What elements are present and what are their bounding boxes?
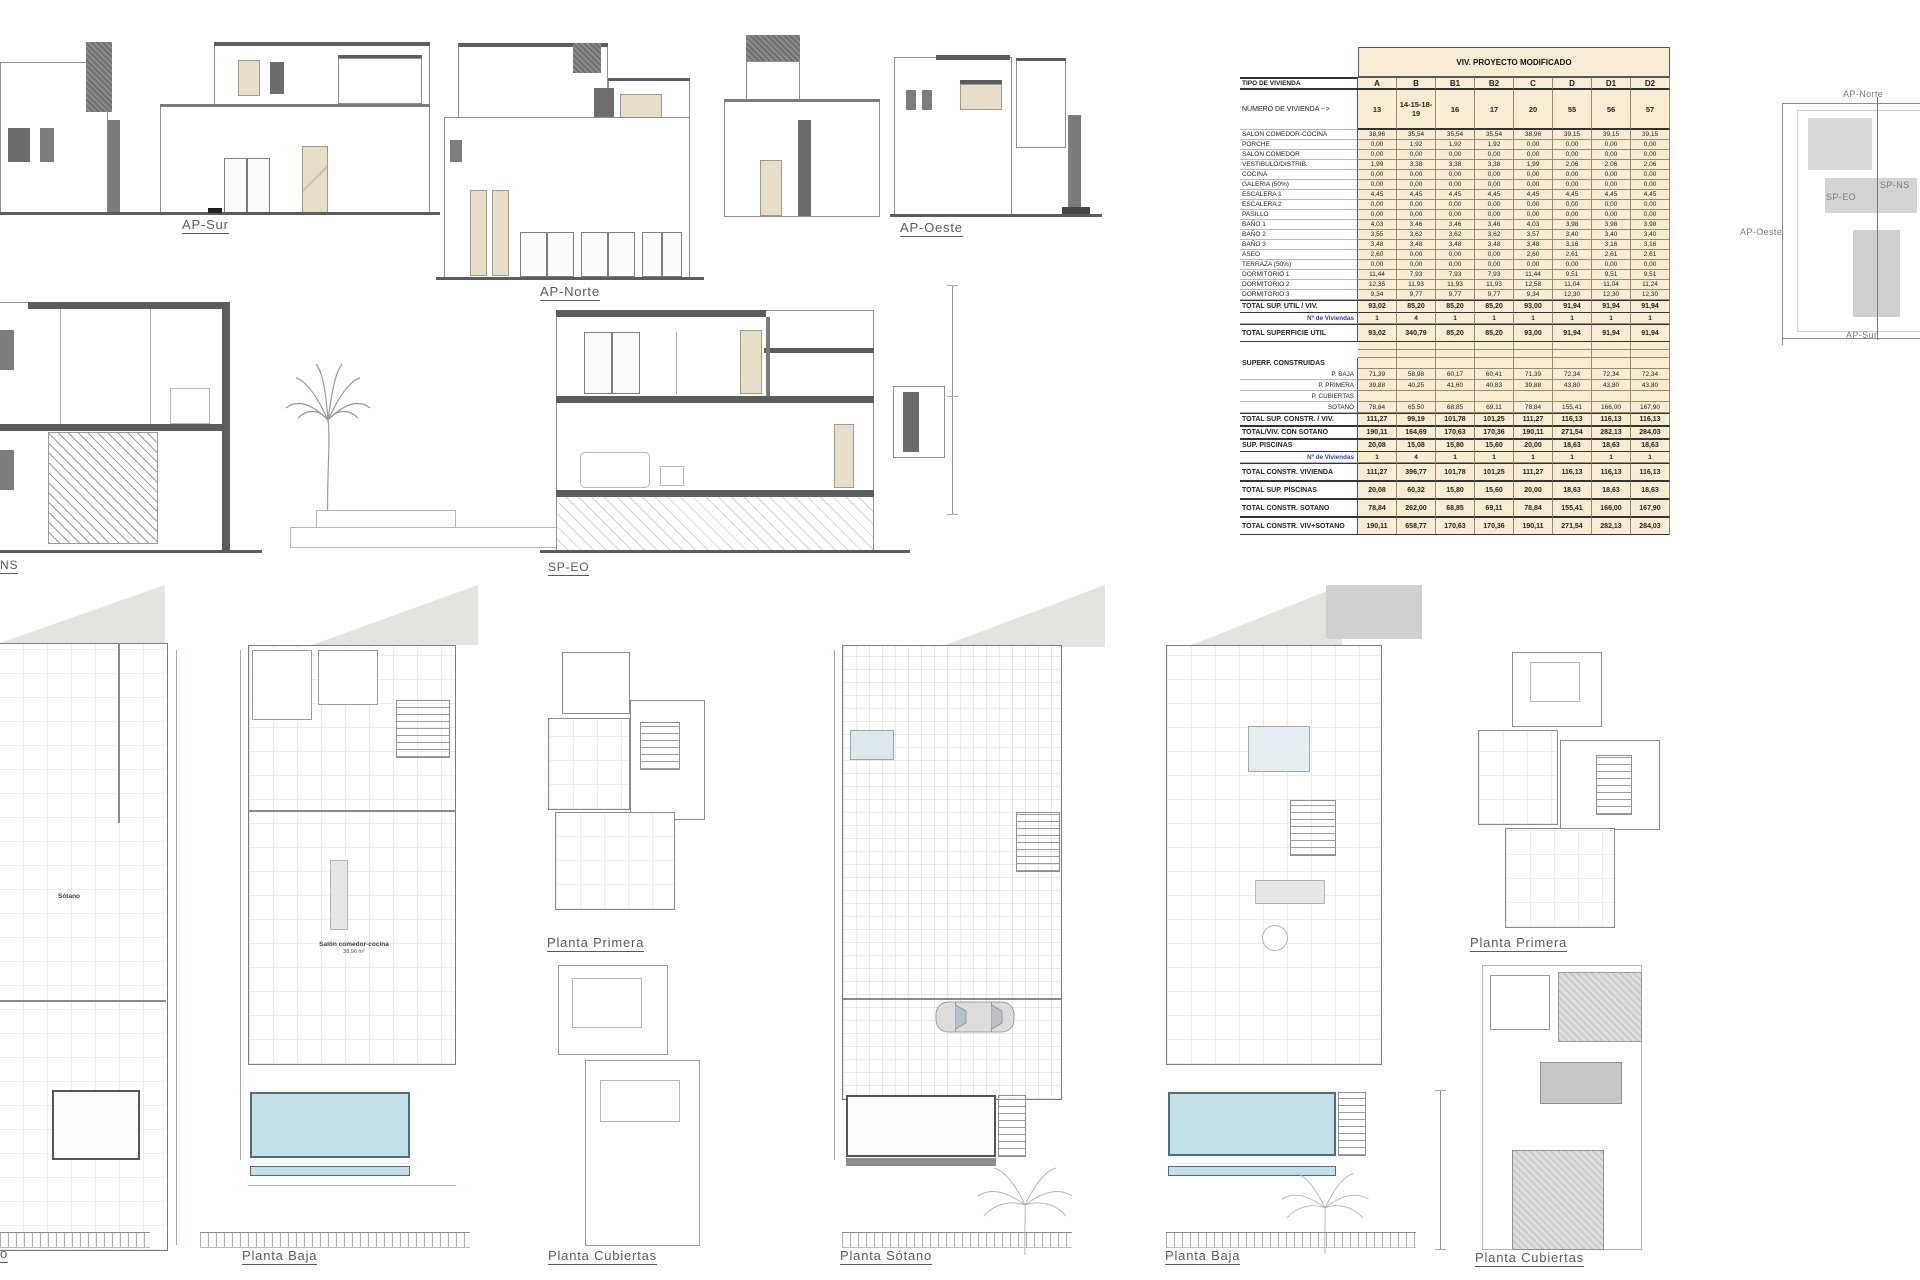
table-cell: 60,41 (1475, 369, 1514, 380)
table-cell: 658,77 (1397, 517, 1436, 535)
table-cell: 4 (1397, 452, 1436, 463)
roof-terrace-hatch (1558, 972, 1642, 1042)
tower-cap (746, 35, 800, 61)
table-cell: 91,94 (1631, 324, 1670, 342)
table-row (1240, 350, 1672, 358)
glass-door (642, 232, 662, 277)
table-cell: 0,00 (1514, 200, 1553, 210)
table-cell: 15,80 (1436, 439, 1475, 452)
label-planta-cubiertas: Planta Cubiertas (1475, 1250, 1584, 1267)
sofa (580, 452, 650, 488)
table-cell: 55 (1553, 90, 1592, 130)
ground-line (140, 212, 440, 215)
table-cell (1475, 350, 1514, 358)
table-cell: 18,63 (1592, 439, 1631, 452)
table-cell: 1 (1631, 452, 1670, 463)
table-cell: 1,92 (1436, 140, 1475, 150)
table-cell: 271,54 (1553, 517, 1592, 535)
wall (0, 1000, 166, 1002)
table-cell: 4 (1397, 313, 1436, 324)
table-cell: 0,00 (1631, 140, 1670, 150)
wall (118, 643, 120, 823)
table-cell: 170,63 (1436, 426, 1475, 439)
table-cell: 0,00 (1436, 200, 1475, 210)
window (903, 392, 919, 452)
table-cell: 3,98 (1631, 220, 1670, 230)
table-cell: 9,77 (1397, 290, 1436, 300)
table-cell: 35,54 (1475, 130, 1514, 140)
terrain-step (316, 510, 456, 528)
table-row: BAÑO 14,033,463,463,464,033,983,983,98 (1240, 220, 1672, 230)
table-cell: 41,60 (1436, 380, 1475, 391)
window (0, 330, 14, 370)
table-cell: 262,00 (1397, 499, 1436, 517)
table-cell: 85,20 (1436, 324, 1475, 342)
table-cell: 396,77 (1397, 463, 1436, 481)
table-cell: 3,48 (1397, 240, 1436, 250)
pool-channel (250, 1166, 410, 1176)
ground-line (436, 277, 704, 280)
table-cell (1631, 350, 1670, 358)
bathroom (1248, 726, 1310, 772)
plan-body (1166, 645, 1382, 1065)
table-cell: 0,00 (1631, 200, 1670, 210)
table-cell: 2,06 (1592, 160, 1631, 170)
table-row-label (1240, 350, 1358, 358)
table-row: TERRAZA (50%)0,000,000,000,000,000,000,0… (1240, 260, 1672, 270)
table-cell: 0,00 (1397, 200, 1436, 210)
kitchen-island (1255, 880, 1325, 904)
table-cell: 9,51 (1553, 270, 1592, 280)
table-cell: 0,00 (1397, 260, 1436, 270)
table-cell (1592, 358, 1631, 369)
window (238, 60, 260, 96)
table-cell: 12,35 (1358, 280, 1397, 290)
table-row-label: SALON COMEDOR-COCINA (1240, 130, 1358, 140)
table-cell: 18,63 (1631, 439, 1670, 452)
table-cell: 1 (1436, 452, 1475, 463)
table-cell: 111,27 (1514, 413, 1553, 426)
room (555, 812, 675, 910)
table-cell: 39,15 (1631, 130, 1670, 140)
roof-edge (936, 55, 1010, 60)
table-cell: 190,11 (1358, 426, 1397, 439)
table-row: PORCHE0,001,921,921,920,000,000,000,00 (1240, 140, 1672, 150)
room (318, 650, 378, 705)
table-row-label: SUP. PISCINAS (1240, 439, 1358, 452)
table-cell: 1 (1631, 313, 1670, 324)
table-row-label: PORCHE (1240, 140, 1358, 150)
table-row: TOTAL SUP. PISCINAS20,0860,3215,8015,602… (1240, 481, 1672, 499)
table-row: DORMITORIO 212,3511,9311,9311,9312,5811,… (1240, 280, 1672, 290)
table-row-label: VESTIBULO/DISTRIB. (1240, 160, 1358, 170)
table-cell: 3,55 (1358, 230, 1397, 240)
roof-block (1540, 1062, 1622, 1104)
table-cell: 116,13 (1553, 413, 1592, 426)
table-cell: 1 (1514, 313, 1553, 324)
table-cell: 11,93 (1475, 280, 1514, 290)
table-cell (1397, 350, 1436, 358)
room (1505, 828, 1615, 928)
table-row: ASEO2,600,000,000,002,602,612,612,61 (1240, 250, 1672, 260)
table-cell: 20 (1514, 90, 1553, 130)
furniture (170, 388, 210, 424)
canopy-edge (1016, 58, 1066, 61)
table-cell: 7,93 (1436, 270, 1475, 280)
table-cell: 0,00 (1631, 180, 1670, 190)
label-col1-truncated: o (0, 1246, 8, 1263)
basement-slab (556, 490, 874, 497)
table-cell: 39,88 (1358, 380, 1397, 391)
table-cell: 3,40 (1553, 230, 1592, 240)
table-row: COCINA0,000,000,000,000,000,000,000,00 (1240, 170, 1672, 180)
glass-door (247, 158, 270, 214)
table-cell: 0,00 (1397, 170, 1436, 180)
table-row: TOTAL CONSTR. VIVIENDA111,27396,77101,78… (1240, 463, 1672, 481)
label-planta-baja: Planta Baja (242, 1248, 317, 1265)
table-row-label: COCINA (1240, 170, 1358, 180)
table-cell: 4,03 (1358, 220, 1397, 230)
table-cell: 11,04 (1592, 280, 1631, 290)
pool (52, 1090, 140, 1160)
table-cell: 15,60 (1475, 439, 1514, 452)
dimension-line (240, 650, 241, 1160)
table-cell: 11,04 (1553, 280, 1592, 290)
table-cell: 164,69 (1397, 426, 1436, 439)
table-cell: 65,50 (1397, 402, 1436, 413)
table-cell: 0,00 (1397, 210, 1436, 220)
table-row-label: DORMITORIO 3 (1240, 290, 1358, 300)
table-row-label: P. CUBIERTAS (1240, 391, 1358, 402)
table-cell: 69,11 (1475, 402, 1514, 413)
table-cell: 38,96 (1514, 130, 1553, 140)
deck-slab (764, 348, 874, 353)
room (1478, 730, 1558, 825)
table-cell: 170,36 (1475, 517, 1514, 535)
floor-slab (556, 396, 874, 403)
window-header (960, 80, 1002, 84)
ground-line (0, 212, 140, 215)
table-cell (1592, 342, 1631, 350)
table-cell: 0,00 (1592, 170, 1631, 180)
dimension-tick (947, 285, 958, 286)
table-row: TOTAL SUPERFICIE UTIL93,02340,7985,2085,… (1240, 324, 1672, 342)
table-cell: 4,45 (1514, 190, 1553, 200)
table-row: SALON COMEDOR0,000,000,000,000,000,000,0… (1240, 150, 1672, 160)
table-cell (1475, 342, 1514, 350)
areas-table: VIV. PROYECTO MODIFICADOTIPO DE VIVIENDA… (1240, 47, 1672, 535)
stair (1290, 800, 1336, 856)
glass-door (612, 332, 640, 394)
table-cell: 340,79 (1397, 324, 1436, 342)
table-cell: 3,46 (1475, 220, 1514, 230)
panel (338, 58, 422, 104)
table-row: TOTAL/VIV. CON SOTANO190,11164,69170,631… (1240, 426, 1672, 439)
table-cell: 3,48 (1436, 240, 1475, 250)
key-label-ap-oeste: AP-Oeste (1740, 227, 1782, 237)
table-cell (1358, 342, 1397, 350)
pool-steps (1338, 1092, 1366, 1156)
table-cell: 39,88 (1514, 380, 1553, 391)
table-cell: 71,39 (1514, 369, 1553, 380)
table-cell: 35,54 (1436, 130, 1475, 140)
table-cell: 15,80 (1436, 481, 1475, 499)
table-row-label: Nº de Viviendas (1240, 452, 1358, 463)
table-cell: 18,63 (1592, 481, 1631, 499)
table-cell (1553, 342, 1592, 350)
table-cell (1436, 350, 1475, 358)
table-cell: 0,00 (1397, 250, 1436, 260)
table-cell (1358, 358, 1397, 369)
table-cell: 91,94 (1631, 300, 1670, 313)
roof-slab (556, 310, 766, 317)
label-planta-primera: Planta Primera (547, 935, 644, 952)
wood-door (302, 146, 328, 214)
table-cell: 1,92 (1475, 140, 1514, 150)
door (760, 160, 782, 216)
table-cell: 43,80 (1631, 380, 1670, 391)
table-cell: 3,98 (1592, 220, 1631, 230)
table-cell: 0,00 (1553, 210, 1592, 220)
table-cell: 0,00 (1514, 170, 1553, 180)
table-cell: 69,11 (1475, 499, 1514, 517)
table-col-header: D (1553, 77, 1592, 90)
table-cell (1358, 391, 1397, 402)
table-cell (1397, 391, 1436, 402)
table-cell: 3,57 (1514, 230, 1553, 240)
roof-edge (214, 42, 430, 46)
table-cell: 72,34 (1553, 369, 1592, 380)
table-numero-row: NUMERO DE VIVIENDA -->1314-15-18-1916172… (1240, 90, 1672, 130)
table-row-label: GALERIA (50%) (1240, 180, 1358, 190)
table-cell: 271,54 (1553, 426, 1592, 439)
table-cell: 16 (1436, 90, 1475, 130)
table-cell: 91,94 (1592, 300, 1631, 313)
table-cell: 93,02 (1358, 300, 1397, 313)
table-cell: 14-15-18-19 (1397, 90, 1436, 130)
glass-door (224, 158, 247, 214)
floor-slab (0, 424, 230, 431)
table-cell (1514, 391, 1553, 402)
table-cell: 0,00 (1475, 210, 1514, 220)
table-row-label: BAÑO 2 (1240, 230, 1358, 240)
glass-door (520, 232, 547, 277)
interior-line (676, 332, 677, 394)
ground-line (890, 214, 1102, 217)
table-cell: 20,08 (1358, 481, 1397, 499)
table-cell: 1 (1553, 313, 1592, 324)
label-ap-oeste: AP-Oeste (900, 220, 963, 237)
table-row: Nº de Viviendas14111111 (1240, 452, 1672, 463)
table-cell: 20,08 (1358, 439, 1397, 452)
table-cell (1631, 391, 1670, 402)
table-cell: 4,45 (1553, 190, 1592, 200)
door (740, 330, 762, 394)
boundary-line (1782, 103, 1920, 104)
stair (396, 700, 450, 758)
table-type-header-row: TIPO DE VIVIENDAABB1B2CDD1D2 (1240, 77, 1672, 90)
window (270, 62, 284, 94)
table-cell: 1 (1514, 452, 1553, 463)
table-cell: 68,85 (1436, 402, 1475, 413)
slab-line (160, 104, 430, 107)
glass-door (547, 232, 574, 277)
table-cell: 190,11 (1358, 517, 1397, 535)
table-cell (1592, 391, 1631, 402)
chimney (573, 43, 601, 73)
stair (1016, 812, 1060, 872)
kitchen-island (330, 860, 348, 930)
window (8, 128, 30, 162)
room-inner (1530, 662, 1580, 702)
table-cell: 4,45 (1397, 190, 1436, 200)
table-cell: 11,93 (1397, 280, 1436, 290)
label-planta-baja: Planta Baja (1165, 1248, 1240, 1265)
table-row-label: ESCALERA 1 (1240, 190, 1358, 200)
roof-slab (28, 302, 230, 309)
table-cell: 1,99 (1358, 160, 1397, 170)
block-north (1808, 118, 1872, 170)
table-cell: 116,13 (1592, 413, 1631, 426)
label-planta-sotano: Planta Sótano (840, 1248, 932, 1265)
pool (846, 1095, 996, 1157)
key-label-ap-norte: AP-Norte (1843, 89, 1883, 99)
table-cell: 4,45 (1475, 190, 1514, 200)
table-row: VESTIBULO/DISTRIB.1,993,383,383,381,992,… (1240, 160, 1672, 170)
table-cell: 43,80 (1553, 380, 1592, 391)
table-cell: 85,20 (1475, 300, 1514, 313)
table-cell: 9,51 (1592, 270, 1631, 280)
table-cell: 7,93 (1475, 270, 1514, 280)
table-cell: 0,00 (1592, 210, 1631, 220)
table-row: ESCALERA 20,000,000,000,000,000,000,000,… (1240, 200, 1672, 210)
table-row: PASILLO0,000,000,000,000,000,000,000,00 (1240, 210, 1672, 220)
table-cell: 91,94 (1553, 324, 1592, 342)
table-cell: 3,62 (1397, 230, 1436, 240)
wall (766, 317, 770, 396)
interior-line (150, 309, 151, 424)
table-cell: 3,40 (1631, 230, 1670, 240)
table-cell (1553, 350, 1592, 358)
slab-line (724, 99, 880, 102)
table-cell: 284,03 (1631, 517, 1670, 535)
table-cell: 0,00 (1553, 200, 1592, 210)
table-row: SUP. PISCINAS20,0815,0815,8015,6020,0018… (1240, 439, 1672, 452)
hatch-strip (200, 1232, 470, 1248)
table-cell: 1 (1592, 313, 1631, 324)
table-cell: 0,00 (1631, 210, 1670, 220)
lower-floor (160, 104, 430, 214)
table-cell: 56 (1592, 90, 1631, 130)
table-cell: 78,84 (1358, 402, 1397, 413)
table-cell: 60,32 (1397, 481, 1436, 499)
table-cell: 4,45 (1631, 190, 1670, 200)
table-cell: 0,00 (1475, 260, 1514, 270)
table-cell: 0,00 (1397, 180, 1436, 190)
wall (222, 302, 230, 552)
table-cell: 0,00 (1436, 210, 1475, 220)
table-cell: 155,41 (1553, 499, 1592, 517)
table-cell: 13 (1358, 90, 1397, 130)
table-cell: 3,48 (1514, 240, 1553, 250)
hatch-strip (842, 1232, 1072, 1248)
table-cell: 0,00 (1475, 150, 1514, 160)
table-cell: 40,83 (1475, 380, 1514, 391)
table-cell: 78,84 (1358, 499, 1397, 517)
table-cell: 0,00 (1436, 170, 1475, 180)
pool-steps (998, 1095, 1026, 1157)
table-cell: 11,24 (1631, 280, 1670, 290)
wet-room (850, 730, 894, 760)
door (470, 190, 487, 276)
window (960, 84, 1002, 110)
table-cell: 0,00 (1553, 260, 1592, 270)
table-cell: 60,17 (1436, 369, 1475, 380)
table-cell: 3,40 (1592, 230, 1631, 240)
table-row: Nº de Viviendas14111111 (1240, 313, 1672, 324)
table-cell: 1 (1475, 452, 1514, 463)
roof-panel (1490, 975, 1550, 1030)
table-cell: 170,36 (1475, 426, 1514, 439)
table-cell (1514, 358, 1553, 369)
stair (48, 432, 158, 544)
table-row-label: P. BAJA (1240, 369, 1358, 380)
dimension-tick (1435, 1249, 1446, 1250)
table-cell: 40,25 (1397, 380, 1436, 391)
table-cell: 4,45 (1358, 190, 1397, 200)
table-cell: 1,92 (1397, 140, 1436, 150)
canopy-panel (1016, 60, 1066, 148)
table-cell: 72,34 (1592, 369, 1631, 380)
table-title: VIV. PROYECTO MODIFICADO (1358, 47, 1670, 77)
dimension-tick (1435, 1090, 1446, 1091)
post (1068, 115, 1081, 215)
table-cell: 78,84 (1514, 402, 1553, 413)
table-cell: 2,60 (1514, 250, 1553, 260)
key-label-ap-sur: AP-Sur (1846, 330, 1877, 340)
table-cell: 9,77 (1436, 290, 1475, 300)
table-cell (1553, 391, 1592, 402)
wall (893, 386, 945, 458)
table-row-label: TOTAL SUP. CONSTR. / VIV. (1240, 413, 1358, 426)
table-cell: 0,00 (1436, 150, 1475, 160)
table-cell: 1,99 (1514, 160, 1553, 170)
table-cell: 58,98 (1397, 369, 1436, 380)
table-row: BAÑO 23,553,623,623,623,573,403,403,40 (1240, 230, 1672, 240)
table-row-label: TIPO DE VIVIENDA (1240, 77, 1358, 90)
table-title-row: VIV. PROYECTO MODIFICADO (1240, 47, 1672, 77)
key-label-sp-eo: SP-EO (1826, 192, 1856, 202)
table-cell: 1 (1553, 452, 1592, 463)
table-cell: 0,00 (1436, 250, 1475, 260)
dimension-line (952, 285, 953, 515)
car-icon (930, 988, 1020, 1046)
label-sp-eo: SP-EO (548, 560, 589, 576)
roof-inner (572, 978, 642, 1028)
table-cell: 93,00 (1514, 324, 1553, 342)
table-col-header: B2 (1475, 77, 1514, 90)
table-cell: 167,90 (1631, 499, 1670, 517)
table-cell: 7,93 (1397, 270, 1436, 280)
table-row-label: BAÑO 3 (1240, 240, 1358, 250)
table-cell: 0,00 (1592, 260, 1631, 270)
table-cell: 190,11 (1514, 426, 1553, 439)
driveway-wedge (312, 585, 478, 645)
table-row-label: SOTANO (1240, 402, 1358, 413)
label-planta-primera: Planta Primera (1470, 935, 1567, 952)
table-cell: 0,00 (1358, 200, 1397, 210)
table-cell: 2,61 (1553, 250, 1592, 260)
